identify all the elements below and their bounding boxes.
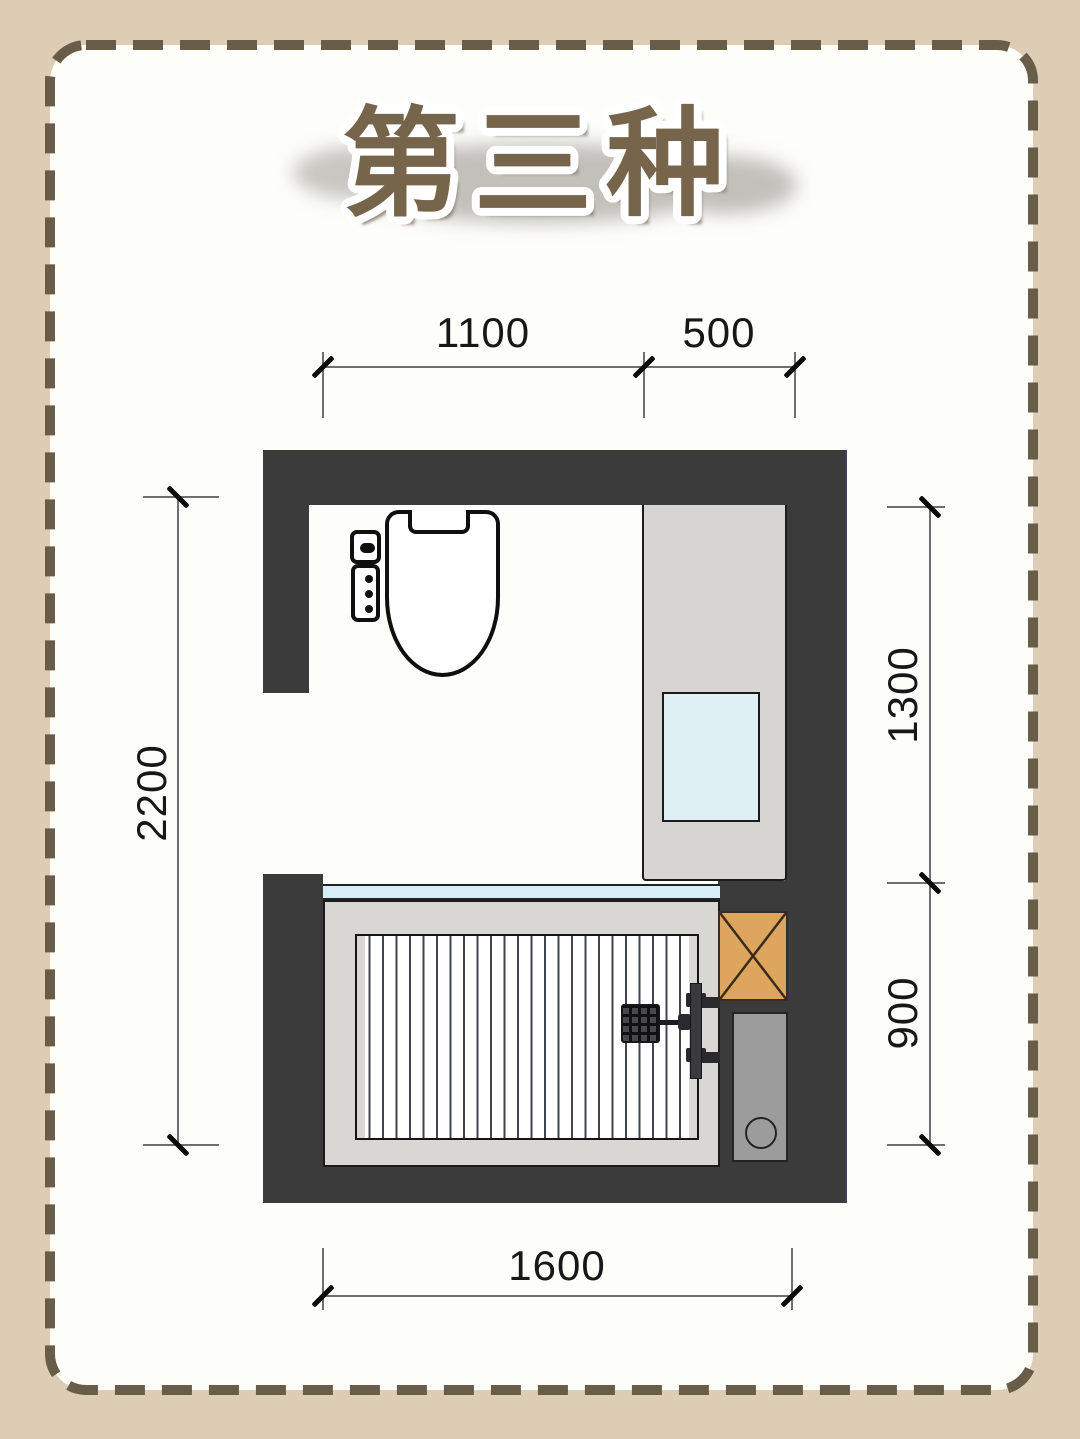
shower-fixture-icon <box>621 1004 660 1043</box>
wall-top <box>263 450 845 505</box>
glass-partition-icon <box>323 884 720 900</box>
dim-left-line <box>177 497 179 1145</box>
shower-arm <box>660 1020 680 1025</box>
floor-plan: 1100 500 2200 1300 900 1600 <box>0 0 1080 1439</box>
dim-right-stub-mid <box>887 882 945 884</box>
wall-right <box>785 450 847 1203</box>
drain-circle <box>745 1117 777 1149</box>
dim-left-label: 2200 <box>130 713 174 873</box>
poster: 第三种 第三种 <box>0 0 1080 1439</box>
wall-left-lower <box>263 874 323 1203</box>
wall-left-upper <box>263 450 309 693</box>
panel-button <box>360 543 375 553</box>
dim-top-line <box>323 366 795 368</box>
dim-top-left-label: 1100 <box>383 311 583 355</box>
dim-bottom-ext-right <box>791 1248 793 1310</box>
dim-right-stub-bottom <box>887 1144 945 1146</box>
dim-top-right-label: 500 <box>619 311 819 355</box>
toilet-control-panel-icon <box>350 530 381 564</box>
shower-wall-stub-bottom <box>702 1052 720 1063</box>
dim-right-line <box>929 507 931 1145</box>
toilet-control-panel-lower <box>351 564 380 622</box>
smart-toilet-top-view-icon <box>385 510 500 677</box>
toilet-tank-notch <box>408 510 470 534</box>
shower-riser-pipe <box>690 983 702 1079</box>
dim-right-upper-label: 1300 <box>881 615 925 775</box>
dim-right-stub-top <box>887 506 945 508</box>
dim-bottom-label: 1600 <box>457 1244 657 1288</box>
wash-basin-icon <box>662 692 760 822</box>
dim-right-lower-label: 900 <box>881 933 925 1093</box>
dim-bottom-ext-left <box>322 1248 324 1310</box>
dim-bottom-line <box>323 1295 792 1297</box>
floor-drain-unit-icon <box>732 1012 788 1162</box>
pipe-shaft-cross-icon <box>718 911 788 1001</box>
wall-bottom <box>263 1167 845 1203</box>
